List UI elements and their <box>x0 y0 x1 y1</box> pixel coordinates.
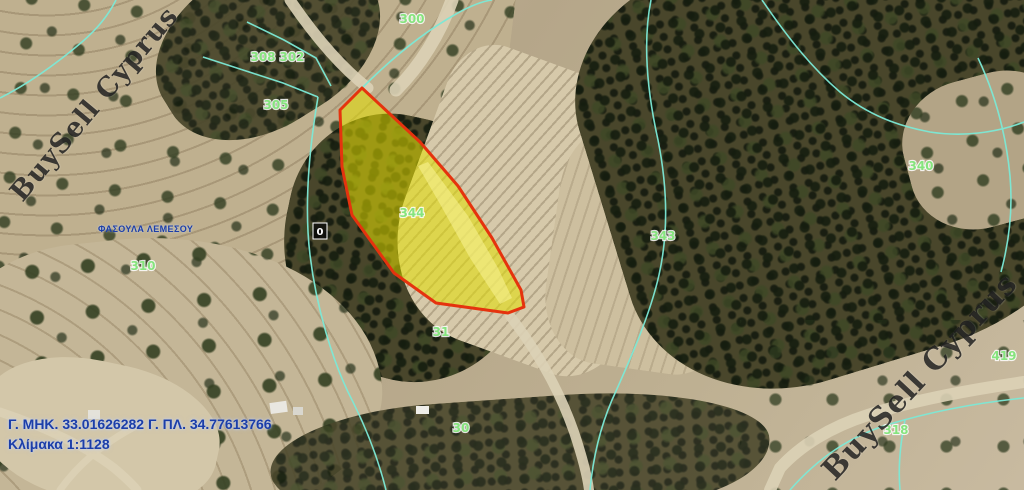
boxed-zero-marker: 0 <box>313 223 327 239</box>
parcel-number-label: 305 <box>263 98 288 112</box>
coordinates-text: Γ. ΜΗΚ. 33.01626282 Γ. ΠΛ. 34.77613766 <box>8 414 272 434</box>
satellite-map-canvas: 300 308 302 305 310 344 343 340 419 318 … <box>0 0 1024 490</box>
building <box>293 407 303 415</box>
parcel-number-label: 340 <box>908 159 933 173</box>
cadastral-line <box>978 58 1011 272</box>
parcel-number-labels: 300 308 302 305 310 344 343 340 419 318 … <box>130 12 1016 437</box>
parcel-number-label: 31 <box>433 325 450 339</box>
road <box>290 0 368 88</box>
parcel-number-label-highlighted: 344 <box>399 206 424 220</box>
parcel-number-label: 300 <box>399 12 424 26</box>
parcel-number-label: 310 <box>130 259 155 273</box>
parcel-number-label: 343 <box>650 229 675 243</box>
cadastral-line <box>762 0 1024 134</box>
parcel-number-label: 419 <box>991 349 1016 363</box>
coordinates-scale-panel: Γ. ΜΗΚ. 33.01626282 Γ. ΠΛ. 34.77613766 Κ… <box>8 414 272 454</box>
scale-text: Κλίμακα 1:1128 <box>8 434 272 454</box>
road <box>510 316 589 490</box>
boxed-zero-label: 0 <box>317 227 324 238</box>
parcel-number-label: 308 <box>250 50 275 64</box>
cadastral-line <box>590 0 666 490</box>
building <box>269 401 287 414</box>
region-name-label: ΦΑΣΟΥΛΑ ΛΕΜΕΣΟΥ <box>98 224 193 234</box>
parcel-number-label: 30 <box>453 421 470 435</box>
parcel-number-label: 302 <box>279 50 304 64</box>
highlighted-parcel <box>340 88 524 313</box>
building <box>416 406 429 414</box>
